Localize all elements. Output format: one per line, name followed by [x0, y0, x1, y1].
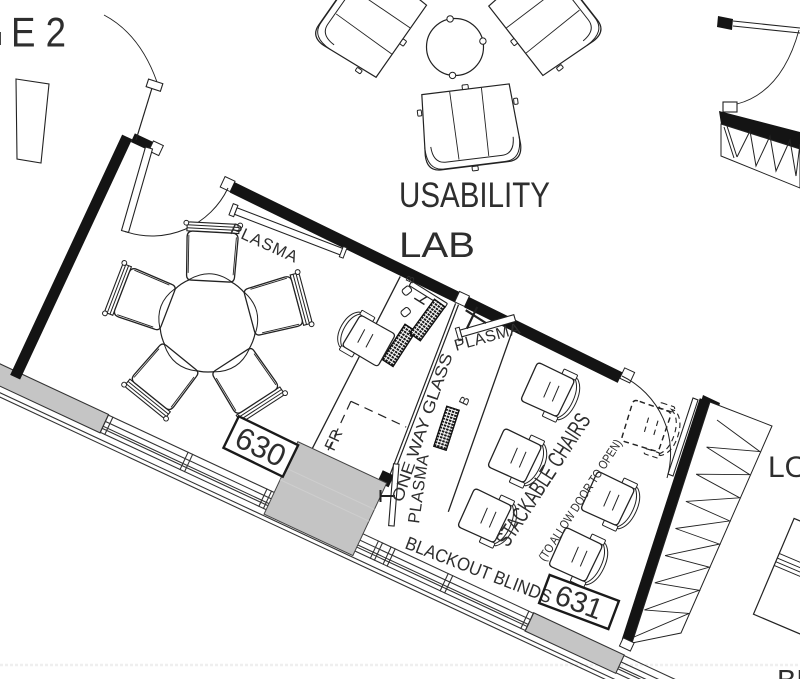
svg-text:E 2: E 2: [11, 9, 66, 56]
svg-text:USABILITY: USABILITY: [399, 176, 550, 215]
svg-text:LAB: LAB: [399, 226, 475, 265]
svg-text:LOBBY: LOBBY: [768, 451, 800, 484]
svg-text:BE: BE: [777, 665, 800, 679]
